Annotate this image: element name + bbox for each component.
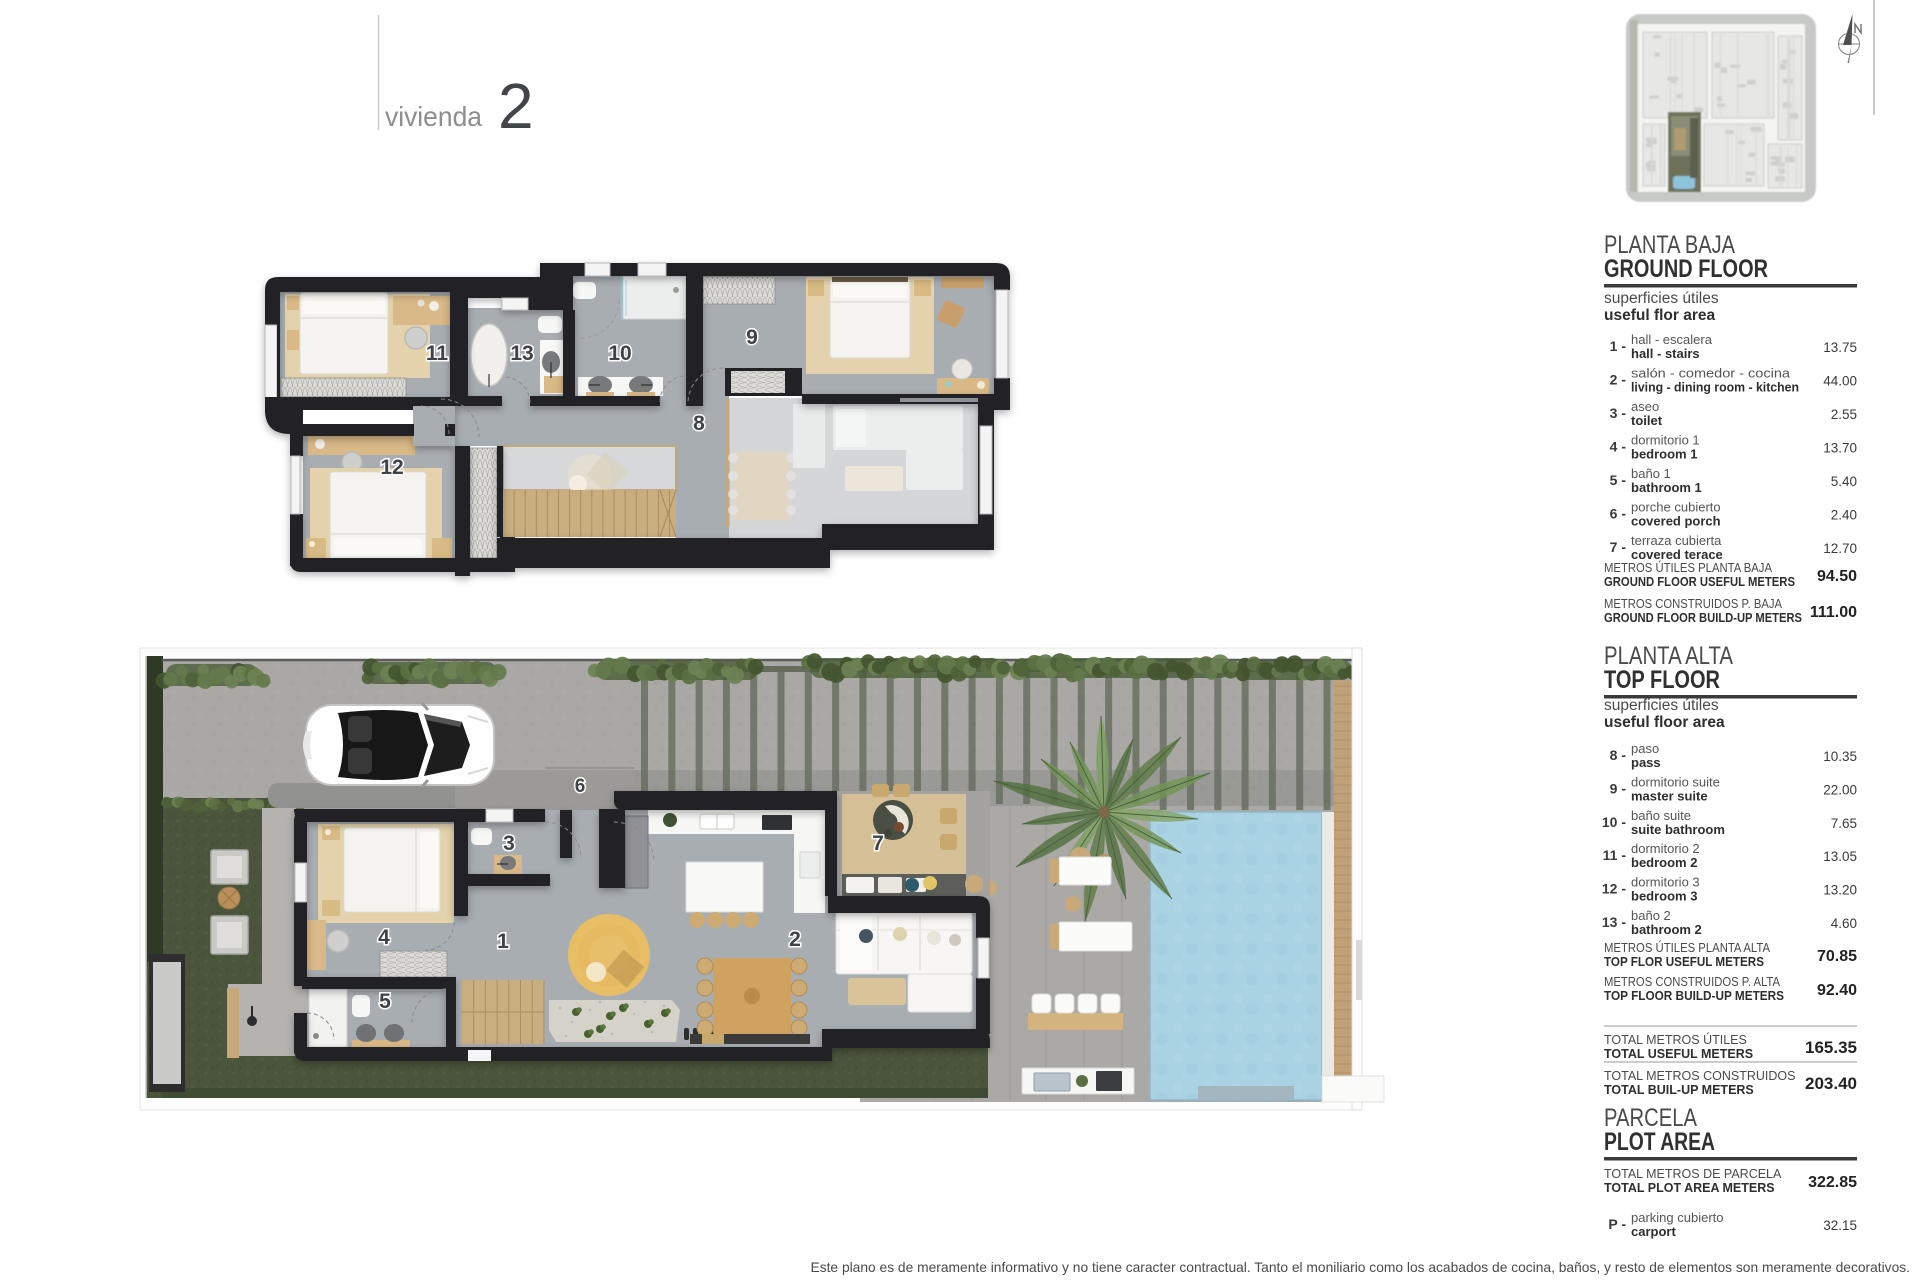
svg-text:bathroom 2: bathroom 2 (1631, 922, 1702, 937)
svg-text:aseo: aseo (1631, 399, 1659, 414)
svg-text:12: 12 (380, 456, 403, 479)
svg-text:salón - comedor - cocina: salón - comedor - cocina (1631, 366, 1791, 381)
svg-text:9 -: 9 - (1610, 780, 1627, 796)
svg-text:P -: P - (1608, 1216, 1626, 1232)
svg-text:TOTAL METROS ÚTILES: TOTAL METROS ÚTILES (1604, 1032, 1747, 1047)
svg-text:32.15: 32.15 (1823, 1218, 1857, 1233)
svg-text:hall - escalera: hall - escalera (1631, 332, 1713, 347)
svg-text:living - dining room - kitchen: living - dining room - kitchen (1631, 380, 1799, 395)
svg-text:11 -: 11 - (1603, 847, 1627, 863)
svg-text:METROS CONSTRUIDOS P. BAJA: METROS CONSTRUIDOS P. BAJA (1604, 597, 1783, 611)
svg-text:master suite: master suite (1631, 788, 1708, 803)
svg-text:bedroom 2: bedroom 2 (1631, 855, 1697, 870)
svg-text:13.75: 13.75 (1823, 340, 1857, 355)
svg-text:METROS ÚTILES PLANTA ALTA: METROS ÚTILES PLANTA ALTA (1604, 940, 1771, 955)
svg-text:13.05: 13.05 (1823, 849, 1857, 864)
svg-text:vivienda: vivienda (385, 101, 482, 132)
svg-text:superficies útiles: superficies útiles (1604, 697, 1719, 714)
svg-text:Este plano es de meramente inf: Este plano es de meramente informativo y… (811, 1260, 1911, 1275)
svg-text:porche cubierto: porche cubierto (1631, 500, 1721, 515)
svg-text:dormitorio 3: dormitorio 3 (1631, 875, 1700, 890)
svg-text:13 -: 13 - (1602, 914, 1626, 930)
svg-text:GROUND FLOOR BUILD-UP METERS: GROUND FLOOR BUILD-UP METERS (1604, 611, 1802, 625)
svg-text:parking cubierto: parking cubierto (1631, 1210, 1724, 1225)
svg-text:covered terace: covered terace (1631, 547, 1723, 562)
svg-text:GROUND FLOOR USEFUL METERS: GROUND FLOOR USEFUL METERS (1604, 575, 1795, 589)
svg-text:8: 8 (693, 412, 705, 435)
svg-text:8 -: 8 - (1610, 747, 1627, 763)
svg-text:13.70: 13.70 (1823, 441, 1857, 456)
svg-text:10 -: 10 - (1602, 814, 1626, 830)
svg-text:TOTAL METROS CONSTRUIDOS: TOTAL METROS CONSTRUIDOS (1604, 1069, 1795, 1083)
svg-text:7 -: 7 - (1610, 539, 1627, 555)
svg-text:2 -: 2 - (1610, 372, 1627, 388)
svg-text:bedroom 1: bedroom 1 (1631, 447, 1697, 462)
svg-text:useful flor area: useful flor area (1604, 307, 1715, 324)
svg-text:TOTAL METROS DE PARCELA: TOTAL METROS DE PARCELA (1604, 1167, 1782, 1181)
svg-text:4.60: 4.60 (1831, 916, 1857, 931)
svg-text:dormitorio suite: dormitorio suite (1631, 774, 1720, 789)
svg-text:GROUND FLOOR: GROUND FLOOR (1604, 255, 1768, 283)
svg-text:10: 10 (608, 342, 631, 365)
svg-text:12 -: 12 - (1602, 881, 1626, 897)
svg-text:baño 2: baño 2 (1631, 908, 1671, 923)
svg-text:covered porch: covered porch (1631, 514, 1721, 529)
svg-text:suite bathroom: suite bathroom (1631, 822, 1725, 837)
svg-text:111.00: 111.00 (1810, 604, 1857, 621)
svg-text:TOP FLOOR: TOP FLOOR (1604, 666, 1720, 694)
svg-text:2.55: 2.55 (1831, 407, 1857, 422)
svg-text:10.35: 10.35 (1823, 749, 1857, 764)
svg-text:3: 3 (503, 832, 515, 855)
svg-text:paso: paso (1631, 741, 1659, 756)
svg-text:6 -: 6 - (1610, 506, 1627, 522)
svg-text:2: 2 (498, 70, 534, 142)
svg-text:3 -: 3 - (1610, 405, 1627, 421)
svg-text:13.20: 13.20 (1823, 883, 1857, 898)
svg-text:44.00: 44.00 (1823, 374, 1857, 389)
svg-text:94.50: 94.50 (1817, 568, 1857, 585)
svg-text:bathroom 1: bathroom 1 (1631, 480, 1702, 495)
svg-text:7.65: 7.65 (1831, 816, 1857, 831)
svg-text:7: 7 (872, 832, 884, 855)
svg-text:70.85: 70.85 (1817, 948, 1857, 965)
svg-text:12.70: 12.70 (1823, 541, 1857, 556)
svg-text:92.40: 92.40 (1817, 982, 1857, 999)
svg-text:pass: pass (1631, 755, 1661, 770)
svg-text:useful floor area: useful floor area (1604, 714, 1725, 731)
svg-text:2.40: 2.40 (1831, 508, 1857, 523)
svg-text:PLOT AREA: PLOT AREA (1604, 1128, 1715, 1156)
svg-text:5.40: 5.40 (1831, 474, 1857, 489)
svg-text:11: 11 (426, 342, 449, 365)
svg-text:baño suite: baño suite (1631, 808, 1691, 823)
svg-text:165.35: 165.35 (1805, 1038, 1857, 1057)
svg-text:203.40: 203.40 (1805, 1074, 1857, 1093)
svg-text:toilet: toilet (1631, 413, 1663, 428)
svg-text:carport: carport (1631, 1224, 1676, 1239)
svg-text:dormitorio 2: dormitorio 2 (1631, 841, 1700, 856)
svg-text:5 -: 5 - (1610, 472, 1627, 488)
svg-text:9: 9 (746, 326, 758, 349)
svg-text:TOTAL USEFUL METERS: TOTAL USEFUL METERS (1604, 1047, 1753, 1061)
svg-text:6: 6 (575, 776, 586, 797)
svg-text:TOTAL BUIL-UP METERS: TOTAL BUIL-UP METERS (1604, 1083, 1754, 1097)
svg-text:TOTAL PLOT AREA METERS: TOTAL PLOT AREA METERS (1604, 1181, 1775, 1195)
svg-text:baño 1: baño 1 (1631, 466, 1671, 481)
svg-text:4: 4 (378, 926, 390, 949)
svg-text:1 -: 1 - (1610, 338, 1627, 354)
svg-text:bedroom 3: bedroom 3 (1631, 889, 1697, 904)
svg-text:hall - stairs: hall - stairs (1631, 346, 1700, 361)
svg-text:2: 2 (789, 928, 801, 951)
svg-text:13: 13 (510, 342, 533, 365)
svg-text:METROS CONSTRUIDOS P. ALTA: METROS CONSTRUIDOS P. ALTA (1604, 975, 1781, 989)
svg-text:dormitorio 1: dormitorio 1 (1631, 433, 1700, 448)
svg-text:TOP FLOR USEFUL METERS: TOP FLOR USEFUL METERS (1604, 955, 1764, 969)
svg-text:22.00: 22.00 (1823, 782, 1857, 797)
svg-text:322.85: 322.85 (1808, 1174, 1857, 1191)
svg-text:superficies útiles: superficies útiles (1604, 290, 1719, 307)
svg-text:1: 1 (497, 930, 509, 953)
svg-text:TOP FLOOR BUILD-UP METERS: TOP FLOOR BUILD-UP METERS (1604, 989, 1784, 1003)
svg-text:5: 5 (379, 990, 391, 1013)
svg-text:METROS ÚTILES PLANTA BAJA: METROS ÚTILES PLANTA BAJA (1604, 560, 1773, 575)
svg-text:4 -: 4 - (1610, 439, 1627, 455)
svg-text:terraza cubierta: terraza cubierta (1631, 533, 1722, 548)
